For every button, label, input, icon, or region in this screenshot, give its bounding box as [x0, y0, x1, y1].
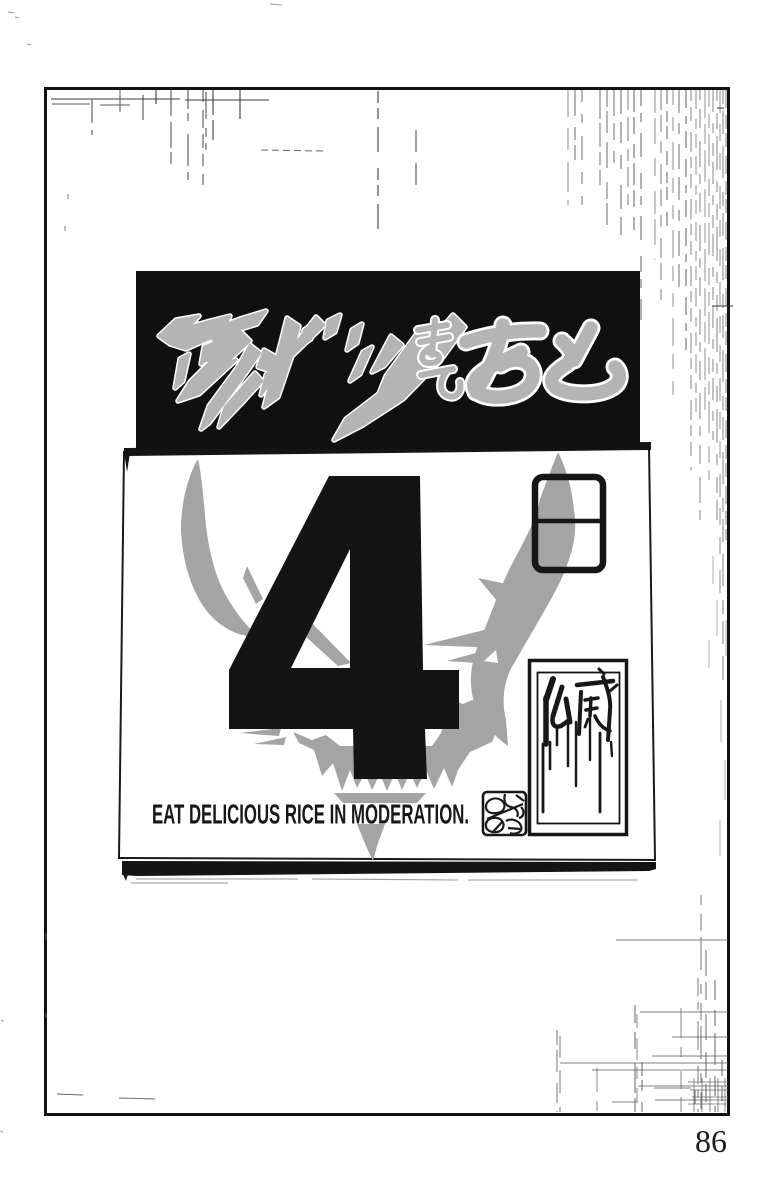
svg-text:EAT DELICIOUS RICE IN MODERATI: EAT DELICIOUS RICE IN MODERATION.	[152, 799, 469, 830]
svg-text:86: 86	[695, 1123, 727, 1159]
